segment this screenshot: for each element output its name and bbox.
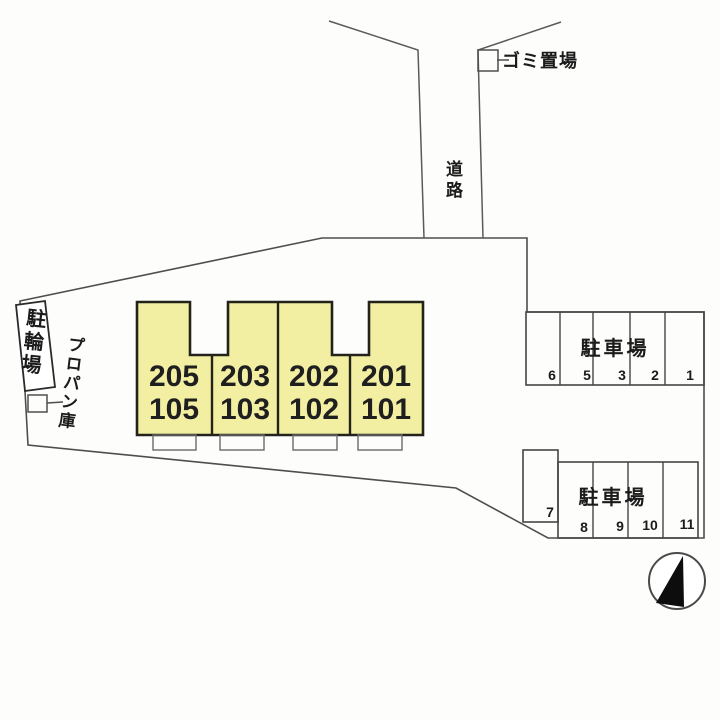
garbage-station-box (478, 50, 498, 71)
compass (649, 553, 705, 609)
porch-step-2 (220, 435, 264, 450)
parking-space-number-10: 10 (638, 517, 662, 533)
parking-space-number-8: 8 (572, 519, 596, 535)
parking-lower-label: 駐車場 (567, 481, 659, 510)
road-edge-left (329, 21, 424, 238)
parking-space-number-2: 2 (643, 367, 667, 383)
parking-space-number-7: 7 (538, 504, 562, 520)
parking-upper-label: 駐車場 (569, 332, 661, 361)
parking-space-number-9: 9 (608, 518, 632, 534)
road-label: 道路 (440, 160, 465, 202)
porch-step-4 (358, 435, 402, 450)
porch-step-1 (153, 435, 196, 450)
unit-label-201-101: 201 101 (344, 360, 428, 426)
parking-space-number-1: 1 (678, 367, 702, 383)
parking-space-number-5: 5 (575, 367, 599, 383)
site-plan: ゴミ置場 道路 駐輪場 プロパン庫 205 105 203 103 202 10… (0, 0, 720, 720)
parking-space-number-11: 11 (675, 516, 699, 532)
parking-space-number-3: 3 (610, 367, 634, 383)
parking-space-number-6: 6 (540, 367, 564, 383)
unit-number-upper: 201 (344, 360, 428, 393)
propane-storage-box (28, 395, 47, 412)
unit-number-lower: 101 (344, 393, 428, 426)
porch-step-3 (293, 435, 337, 450)
garbage-station-label: ゴミ置場 (502, 47, 578, 73)
